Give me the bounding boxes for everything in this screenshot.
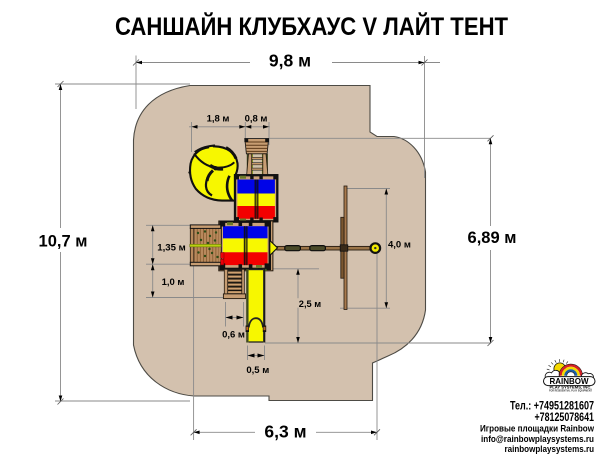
svg-text:0,8 м: 0,8 м: [245, 114, 268, 125]
svg-text:10,7 м: 10,7 м: [39, 233, 88, 251]
svg-text:1,8 м: 1,8 м: [207, 114, 230, 125]
svg-text:1,0 м: 1,0 м: [162, 277, 185, 288]
svg-text:САНШАЙН КЛУБХАУС V ЛАЙТ ТЕНТ: САНШАЙН КЛУБХАУС V ЛАЙТ ТЕНТ: [115, 12, 509, 42]
svg-text:1,35 м: 1,35 м: [157, 243, 186, 253]
svg-text:rainbowplaysystems.ru: rainbowplaysystems.ru: [505, 444, 595, 454]
svg-text:2,5 м: 2,5 м: [299, 299, 322, 309]
svg-text:0,6 м: 0,6 м: [222, 330, 245, 341]
svg-text:RAINBOW: RAINBOW: [550, 376, 589, 386]
svg-text:6,3 м: 6,3 м: [264, 422, 306, 442]
svg-text:Игровые площадки Rainbow: Игровые площадки Rainbow: [480, 424, 595, 434]
svg-text:4,0 м: 4,0 м: [388, 240, 411, 251]
svg-text:6,89 м: 6,89 м: [468, 229, 517, 247]
svg-text:+78125078641: +78125078641: [535, 412, 595, 424]
svg-text:info@rainbowplaysystems.ru: info@rainbowplaysystems.ru: [481, 434, 594, 444]
svg-text:9,8 м: 9,8 м: [269, 51, 311, 71]
svg-text:Тел.: +74951281607: Тел.: +74951281607: [510, 401, 594, 413]
svg-text:FOR RESIDENTIAL PLAY EQUIPMENT: FOR RESIDENTIAL PLAY EQUIPMENT: [549, 390, 593, 393]
svg-text:0,5 м: 0,5 м: [246, 365, 269, 376]
